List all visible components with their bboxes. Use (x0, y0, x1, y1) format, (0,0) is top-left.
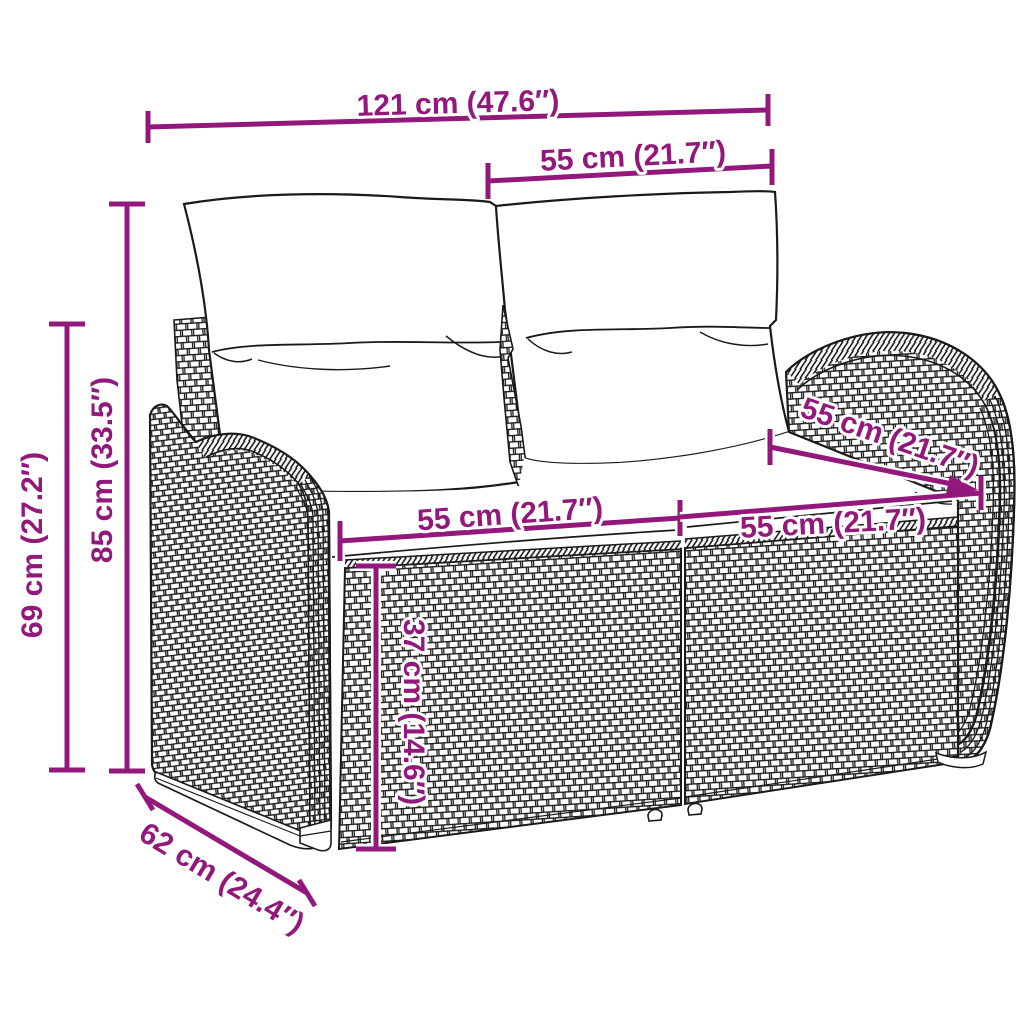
svg-text:37 cm (14.6″): 37 cm (14.6″) (397, 619, 430, 805)
svg-text:85 cm (33.5″): 85 cm (33.5″) (86, 377, 119, 563)
svg-text:69 cm (27.2″): 69 cm (27.2″) (16, 452, 49, 638)
svg-text:121 cm (47.6″): 121 cm (47.6″) (356, 84, 560, 123)
